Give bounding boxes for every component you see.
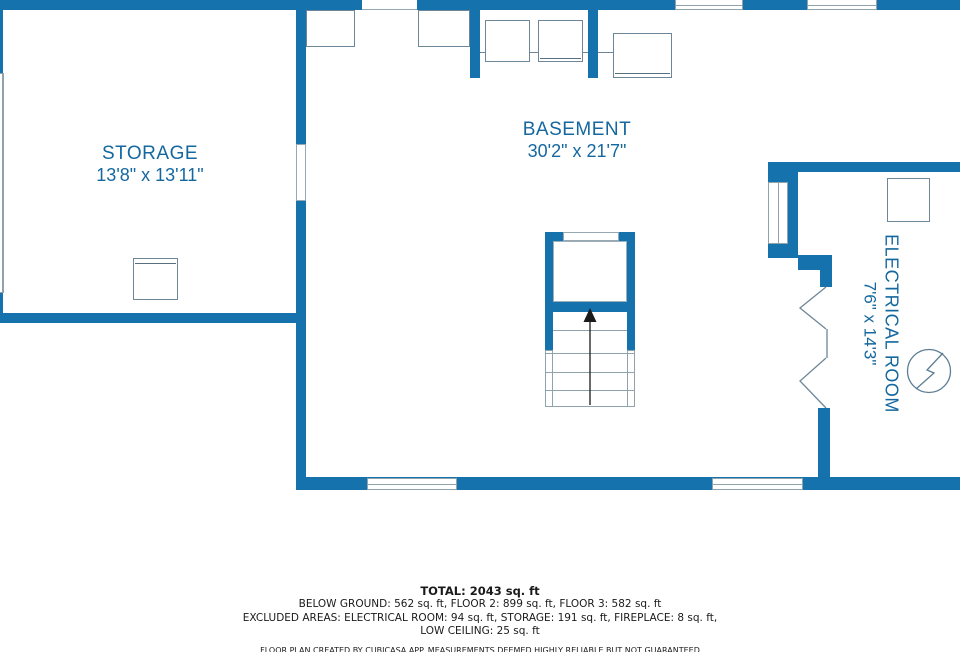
counter-line (583, 52, 588, 53)
room-dimensions: 30'2" x 21'7" (487, 141, 667, 162)
stair-landing (553, 241, 627, 302)
washer-fixture (485, 20, 530, 62)
room-name: BASEMENT (487, 119, 667, 141)
door-opening (296, 144, 306, 201)
fixture-detail-line (135, 263, 176, 264)
stair-tread (546, 390, 634, 391)
stair-tread (546, 372, 634, 373)
stair-tread (553, 330, 627, 331)
wall-stair-right (627, 232, 635, 350)
wall-electrical-stub-lower (818, 408, 830, 488)
electrical-equipment-fixture (887, 178, 930, 222)
window (0, 73, 4, 293)
fixture-detail-line (540, 58, 581, 59)
double-door-icon (800, 287, 827, 408)
electrical-panel-icon (908, 350, 951, 393)
disclaimer-text: FLOOR PLAN CREATED BY CUBICASA APP. MEAS… (0, 646, 960, 652)
room-label-storage: STORAGE 13'8" x 13'11" (60, 143, 240, 186)
room-dimensions: 13'8" x 13'11" (60, 165, 240, 186)
window (768, 182, 788, 244)
window (675, 0, 743, 10)
wall-stub-laundry-right (588, 0, 598, 78)
appliance-fixture (306, 10, 355, 47)
wall-electrical-stub-upper (820, 270, 832, 287)
window (807, 0, 877, 10)
storage-fixture (133, 258, 178, 300)
counter-line (530, 52, 538, 53)
excluded-areas-text: EXCLUDED AREAS: ELECTRICAL ROOM: 94 sq. … (0, 612, 960, 626)
room-name: STORAGE (60, 143, 240, 165)
window (367, 478, 457, 490)
stair-tread (546, 353, 634, 354)
wall-storage-bottom (0, 313, 306, 323)
excluded-areas-text-2: LOW CEILING: 25 sq. ft (0, 625, 960, 639)
area-summary: TOTAL: 2043 sq. ft BELOW GROUND: 562 sq.… (0, 584, 960, 652)
room-name: ELECTRICAL ROOM (881, 219, 903, 429)
wall-storage-right (296, 0, 306, 490)
wall-stair-left (545, 232, 553, 350)
room-label-electrical: ELECTRICAL ROOM 7'6" x 14'3" (860, 219, 903, 429)
door-opening (362, 0, 417, 10)
basement-floor-plan: STORAGE 13'8" x 13'11" BASEMENT 30'2" x … (0, 0, 960, 652)
wall-stub-laundry-left (470, 0, 480, 78)
stair-rail-right (627, 350, 635, 407)
stair-tread (545, 406, 635, 407)
stair-rail-left (545, 350, 553, 407)
dryer-fixture (538, 20, 583, 62)
total-area-text: TOTAL: 2043 sq. ft (0, 584, 960, 598)
counter-line (598, 52, 613, 53)
window (712, 478, 803, 490)
appliance-fixture (613, 33, 672, 78)
counter-line (480, 52, 485, 53)
room-dimensions: 7'6" x 14'3" (860, 219, 881, 429)
appliance-fixture (418, 10, 470, 47)
floor-areas-text: BELOW GROUND: 562 sq. ft, FLOOR 2: 899 s… (0, 598, 960, 612)
room-label-basement: BASEMENT 30'2" x 21'7" (487, 119, 667, 162)
fixture-detail-line (615, 73, 670, 74)
wall-electrical-jog (798, 255, 832, 270)
wall-stair-middle (545, 302, 635, 312)
stair-top-opening (563, 232, 619, 241)
